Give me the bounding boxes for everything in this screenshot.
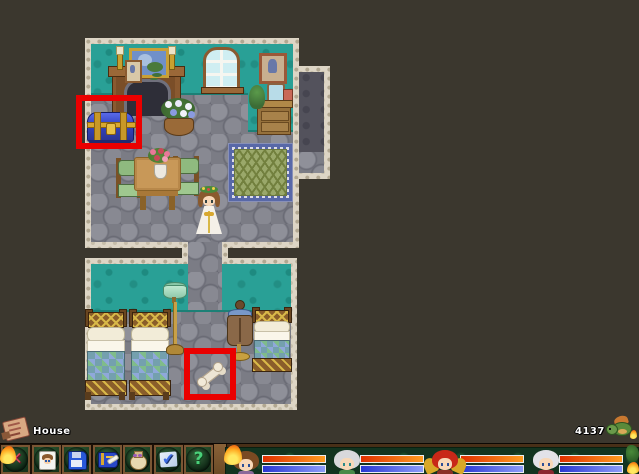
bag-ribbon (133, 454, 137, 457)
basket-body (164, 118, 194, 136)
map-scroll-icon (2, 416, 30, 442)
corner-flame-icon (627, 462, 639, 474)
hp-fill (461, 456, 523, 462)
inventory-bag-icon (125, 447, 150, 472)
eye (211, 200, 213, 203)
eye (242, 464, 244, 467)
coat (227, 315, 253, 346)
hp-fill (361, 456, 423, 462)
mantel-portrait (125, 60, 142, 83)
quest-log-icon (95, 447, 120, 472)
creature-flame-icon (630, 430, 637, 439)
bed-quilt (87, 351, 125, 382)
alcove-floor[interactable] (299, 152, 324, 173)
lamp-base (166, 344, 184, 355)
creature-belly (618, 429, 627, 434)
candle (168, 46, 176, 55)
eye (349, 463, 351, 466)
party-portrait-3[interactable] (432, 450, 458, 474)
portrait-shirt (538, 470, 554, 474)
lamp-pole (173, 302, 177, 346)
bed-foot-post (129, 392, 135, 400)
book-band (101, 453, 104, 465)
mp-fill (461, 466, 523, 472)
highlight-chest (76, 95, 142, 149)
creature-head (606, 424, 618, 435)
checkbox-icon: ✔ (156, 447, 181, 472)
eye (542, 463, 544, 466)
flower-basket (159, 96, 197, 137)
eye (447, 463, 449, 466)
hp-fill (560, 456, 622, 462)
mp-bar-member-4 (559, 465, 623, 473)
check-glyph: ✔ (160, 451, 178, 467)
toolbar-button-save[interactable] (61, 444, 92, 474)
vase-flowers (150, 149, 156, 155)
floor-lamp (162, 282, 186, 359)
table-flower-vase (146, 146, 173, 181)
highlight-bone (184, 348, 236, 400)
plant-leaves (147, 62, 163, 72)
crown-flowers (202, 187, 205, 190)
rug-center (234, 149, 287, 196)
table-leg (140, 196, 146, 210)
money-counter: 4137 (575, 426, 605, 437)
mp-fill (560, 466, 622, 472)
mp-bar-member-2 (360, 465, 424, 473)
portrait-shirt (437, 470, 453, 474)
bed (84, 309, 126, 400)
wall-painting-right (259, 53, 287, 84)
portrait-shirt (339, 470, 355, 474)
help-glyph: ? (194, 451, 204, 468)
toolbar-button-checkbox[interactable]: ✔ (153, 444, 184, 474)
bed-foot-post (85, 392, 91, 400)
plant-decoration (626, 445, 639, 462)
mp-fill (263, 466, 325, 472)
hp-bar-member-1 (262, 455, 326, 463)
bed-foot-post (163, 392, 169, 400)
flower-crown (200, 186, 218, 193)
window-sill (201, 87, 244, 94)
party-portrait-4[interactable] (533, 450, 559, 474)
dresser-drawer (261, 122, 289, 132)
candlestick-left (114, 46, 124, 70)
eye (441, 463, 443, 466)
character-face (203, 196, 215, 206)
toolbar-flame-icon (0, 446, 16, 464)
bed-footboard (252, 358, 292, 372)
mp-bar-member-1 (262, 465, 326, 473)
dresser-plant (249, 85, 265, 109)
mp-bar-member-3 (460, 465, 524, 473)
corridor-wall-right (222, 242, 228, 264)
status-eyes (45, 460, 47, 462)
save-icon (64, 447, 89, 472)
bottom-bar: ✕ (0, 443, 639, 474)
creature-eye (609, 428, 611, 430)
vase-pot (154, 164, 167, 179)
pet-creature (604, 415, 638, 441)
target-flame-icon (224, 445, 242, 465)
toolbar-button-help[interactable]: ? (183, 444, 214, 474)
toolbar-button-status[interactable] (31, 444, 62, 474)
corridor-floor[interactable] (188, 242, 222, 310)
hp-fill (263, 456, 325, 462)
map-name-label: House (33, 426, 71, 437)
dresser-body (257, 107, 291, 135)
hp-bar-member-2 (360, 455, 424, 463)
floppy-label (71, 460, 82, 467)
eye (205, 200, 207, 203)
candle (116, 46, 124, 55)
portrait-figure (130, 65, 135, 73)
bed-quilt (254, 340, 290, 360)
table-leg (169, 196, 175, 210)
eye (548, 463, 550, 466)
status-icon (34, 447, 59, 472)
hp-bar-member-3 (460, 455, 524, 463)
game-screen: House 4137 ✕ (0, 0, 639, 474)
toolbar-button-quest-log[interactable] (92, 444, 123, 474)
basket-foliage (161, 98, 195, 120)
help-icon: ? (186, 447, 211, 472)
vase-leaves (148, 148, 170, 163)
mp-fill (361, 466, 423, 472)
painting-figure (268, 59, 277, 73)
bed-foot-post (119, 392, 125, 400)
scroll-marks (8, 422, 20, 427)
eye (343, 463, 345, 466)
hanging-plant (145, 62, 165, 86)
hp-bar-member-4 (559, 455, 623, 463)
basket-flowers (165, 101, 172, 108)
dresser-drawer (261, 111, 289, 121)
status-sheet (39, 451, 56, 470)
bed-headboard (88, 312, 124, 328)
alcove-back-wall (299, 72, 324, 152)
eye (248, 464, 250, 467)
dresser (253, 83, 293, 135)
rug (228, 143, 293, 202)
toolbar-button-inventory[interactable] (122, 444, 153, 474)
floppy-shutter (72, 452, 81, 458)
floppy-body (68, 451, 87, 470)
bed (252, 307, 290, 375)
player-character[interactable] (195, 185, 223, 234)
coat-seam (239, 318, 241, 342)
window (203, 47, 240, 93)
party-portrait-2[interactable] (334, 450, 360, 474)
character-belt (204, 212, 214, 216)
